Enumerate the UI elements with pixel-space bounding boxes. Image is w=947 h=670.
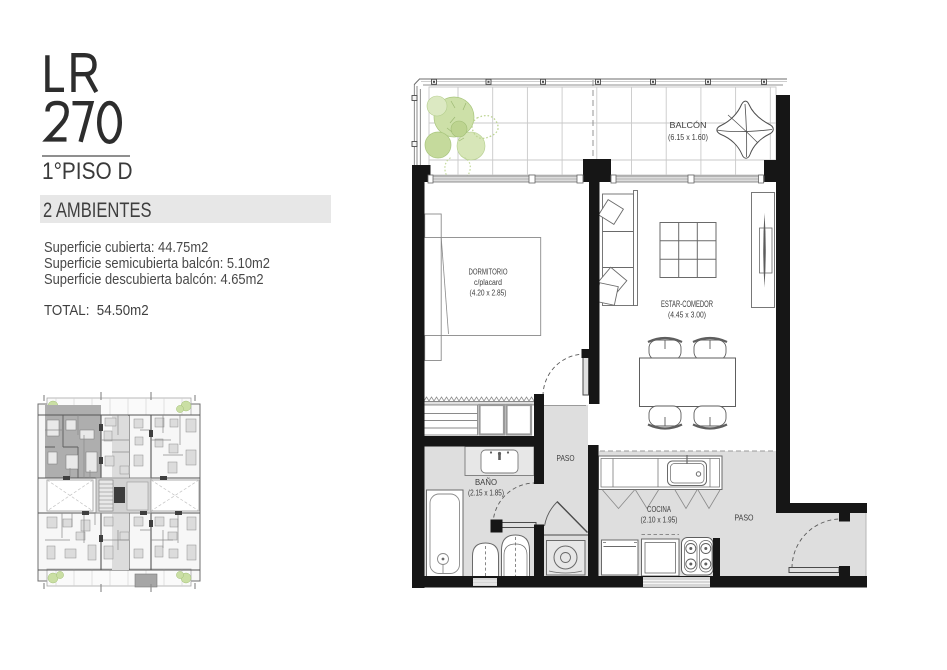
svg-text:(2.15 x 1.85): (2.15 x 1.85) (468, 489, 504, 498)
svg-text:(2.10 x 1.95): (2.10 x 1.95) (641, 516, 678, 525)
svg-text:BAÑO: BAÑO (475, 477, 497, 487)
svg-text:PASO: PASO (735, 513, 754, 523)
svg-text:(4.45 x 3.00): (4.45 x 3.00) (668, 311, 706, 320)
svg-text:c/placard: c/placard (474, 278, 502, 287)
svg-text:(4.20 x 2.85): (4.20 x 2.85) (470, 289, 507, 298)
svg-text:DORMITORIO: DORMITORIO (469, 267, 508, 277)
svg-text:ESTAR-COMEDOR: ESTAR-COMEDOR (661, 299, 713, 309)
svg-text:(6.15 x 1.60): (6.15 x 1.60) (668, 133, 708, 142)
svg-text:COCINA: COCINA (647, 504, 671, 514)
svg-text:BALCÓN: BALCÓN (670, 120, 707, 130)
svg-text:PASO: PASO (557, 453, 575, 463)
